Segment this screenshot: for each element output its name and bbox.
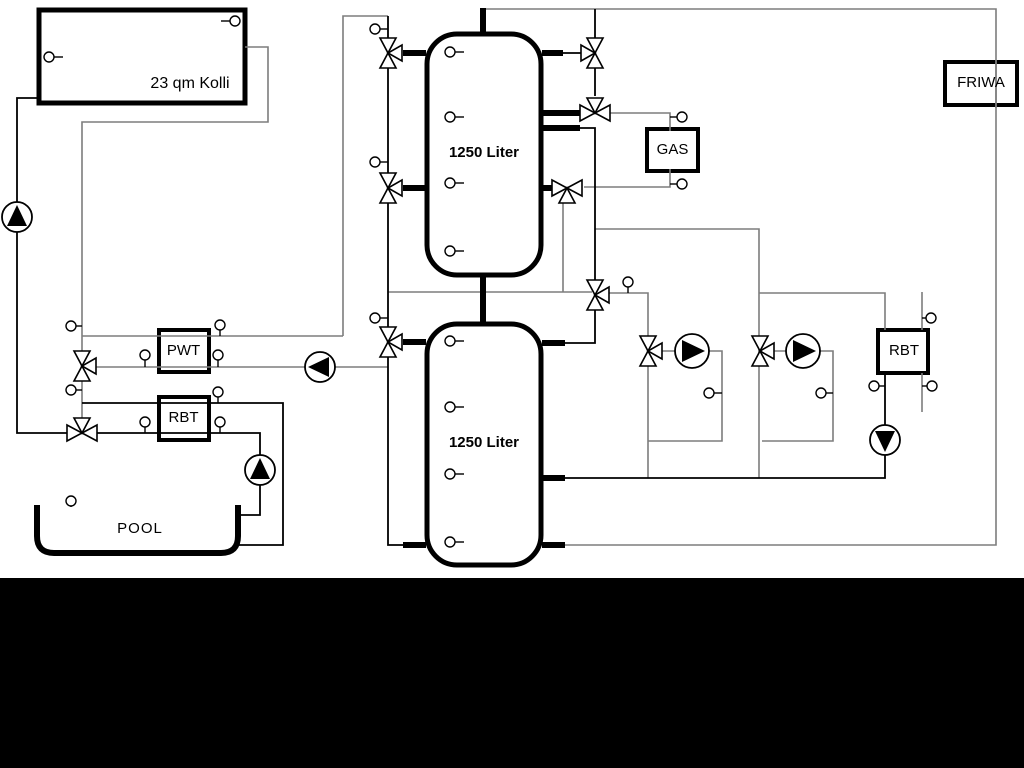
temperature-sensor-icon bbox=[670, 112, 687, 122]
schematic-canvas: 23 qm Kolli 1250 Liter 1250 Liter PWT RB… bbox=[0, 0, 1024, 578]
tank1-label: 1250 Liter bbox=[424, 144, 544, 162]
friwa-label: FRIWA bbox=[943, 74, 1019, 92]
pump-icon-pwt bbox=[305, 352, 335, 382]
pump-icon-hc1 bbox=[675, 334, 709, 368]
three-way-valve-icon-hc2 bbox=[752, 336, 774, 366]
temperature-sensor-icon bbox=[370, 313, 388, 323]
pump-icon-rbt-right bbox=[870, 425, 900, 455]
temperature-sensor-icon bbox=[215, 320, 225, 336]
temperature-sensor-icon bbox=[66, 321, 82, 331]
pwt-label: PWT bbox=[157, 342, 210, 360]
pool-label: POOL bbox=[80, 520, 200, 538]
three-way-valve-icon-tank1-right-top bbox=[581, 38, 603, 68]
three-way-valve-icon-tank2-right bbox=[587, 280, 609, 310]
three-way-valve-icon-tank1-left-bottom bbox=[380, 173, 402, 203]
three-way-valve-icon-tank1-left-top bbox=[380, 38, 402, 68]
three-way-valve-icon-hc1 bbox=[640, 336, 662, 366]
temperature-sensor-icon bbox=[66, 496, 76, 507]
hc1-supply-pipe bbox=[598, 293, 648, 478]
temperature-sensor-icon bbox=[704, 388, 722, 398]
temperature-sensor-icon bbox=[140, 417, 150, 433]
heating-return-main bbox=[545, 455, 885, 478]
rbt-right-supply-pipe bbox=[759, 293, 885, 330]
temperature-sensor-icon bbox=[140, 350, 150, 367]
three-way-valve-icon-rbt-left bbox=[67, 418, 97, 441]
temperature-sensor-icon bbox=[370, 157, 388, 167]
temperature-sensor-icon bbox=[213, 387, 223, 403]
three-way-valve-icon-gas-return bbox=[552, 180, 582, 203]
pump-icon-pool bbox=[245, 455, 275, 485]
temperature-sensor-icon bbox=[922, 313, 936, 323]
temperature-sensor-icon bbox=[816, 388, 833, 398]
boxes bbox=[39, 10, 1017, 565]
friwa-supply-pipe bbox=[483, 9, 996, 545]
three-way-valve-icon-gas-supply bbox=[580, 98, 610, 121]
solar-supply-pipe bbox=[17, 98, 70, 433]
temperature-sensor-icon bbox=[370, 24, 388, 34]
temperature-sensor-icon bbox=[623, 277, 633, 293]
temperature-sensor-icon bbox=[670, 179, 687, 189]
bottom-black-band bbox=[0, 578, 1024, 768]
rbt-left-label: RBT bbox=[157, 409, 210, 427]
temperature-sensor-icon bbox=[215, 417, 225, 433]
temperature-sensor-icon bbox=[66, 385, 82, 395]
gas-label: GAS bbox=[645, 141, 700, 159]
tank2-label: 1250 Liter bbox=[424, 434, 544, 452]
pump-icon-hc2 bbox=[786, 334, 820, 368]
temperature-sensor-icon bbox=[922, 381, 937, 391]
rbt1-bottom-pool-pipe bbox=[97, 433, 260, 515]
three-way-valve-icon-tank2-left bbox=[380, 327, 402, 357]
tank-left-column-pipe bbox=[388, 16, 405, 545]
schematic-page: 23 qm Kolli 1250 Liter 1250 Liter PWT RB… bbox=[0, 0, 1024, 768]
solar-collector-label: 23 qm Kolli bbox=[115, 75, 265, 93]
three-way-valve-icon-pwt bbox=[74, 351, 96, 381]
temperature-sensor-icon bbox=[869, 381, 885, 391]
temperature-sensor-icon bbox=[213, 350, 223, 367]
pump-icon-solar bbox=[2, 202, 32, 232]
rbt-right-label: RBT bbox=[878, 342, 930, 360]
